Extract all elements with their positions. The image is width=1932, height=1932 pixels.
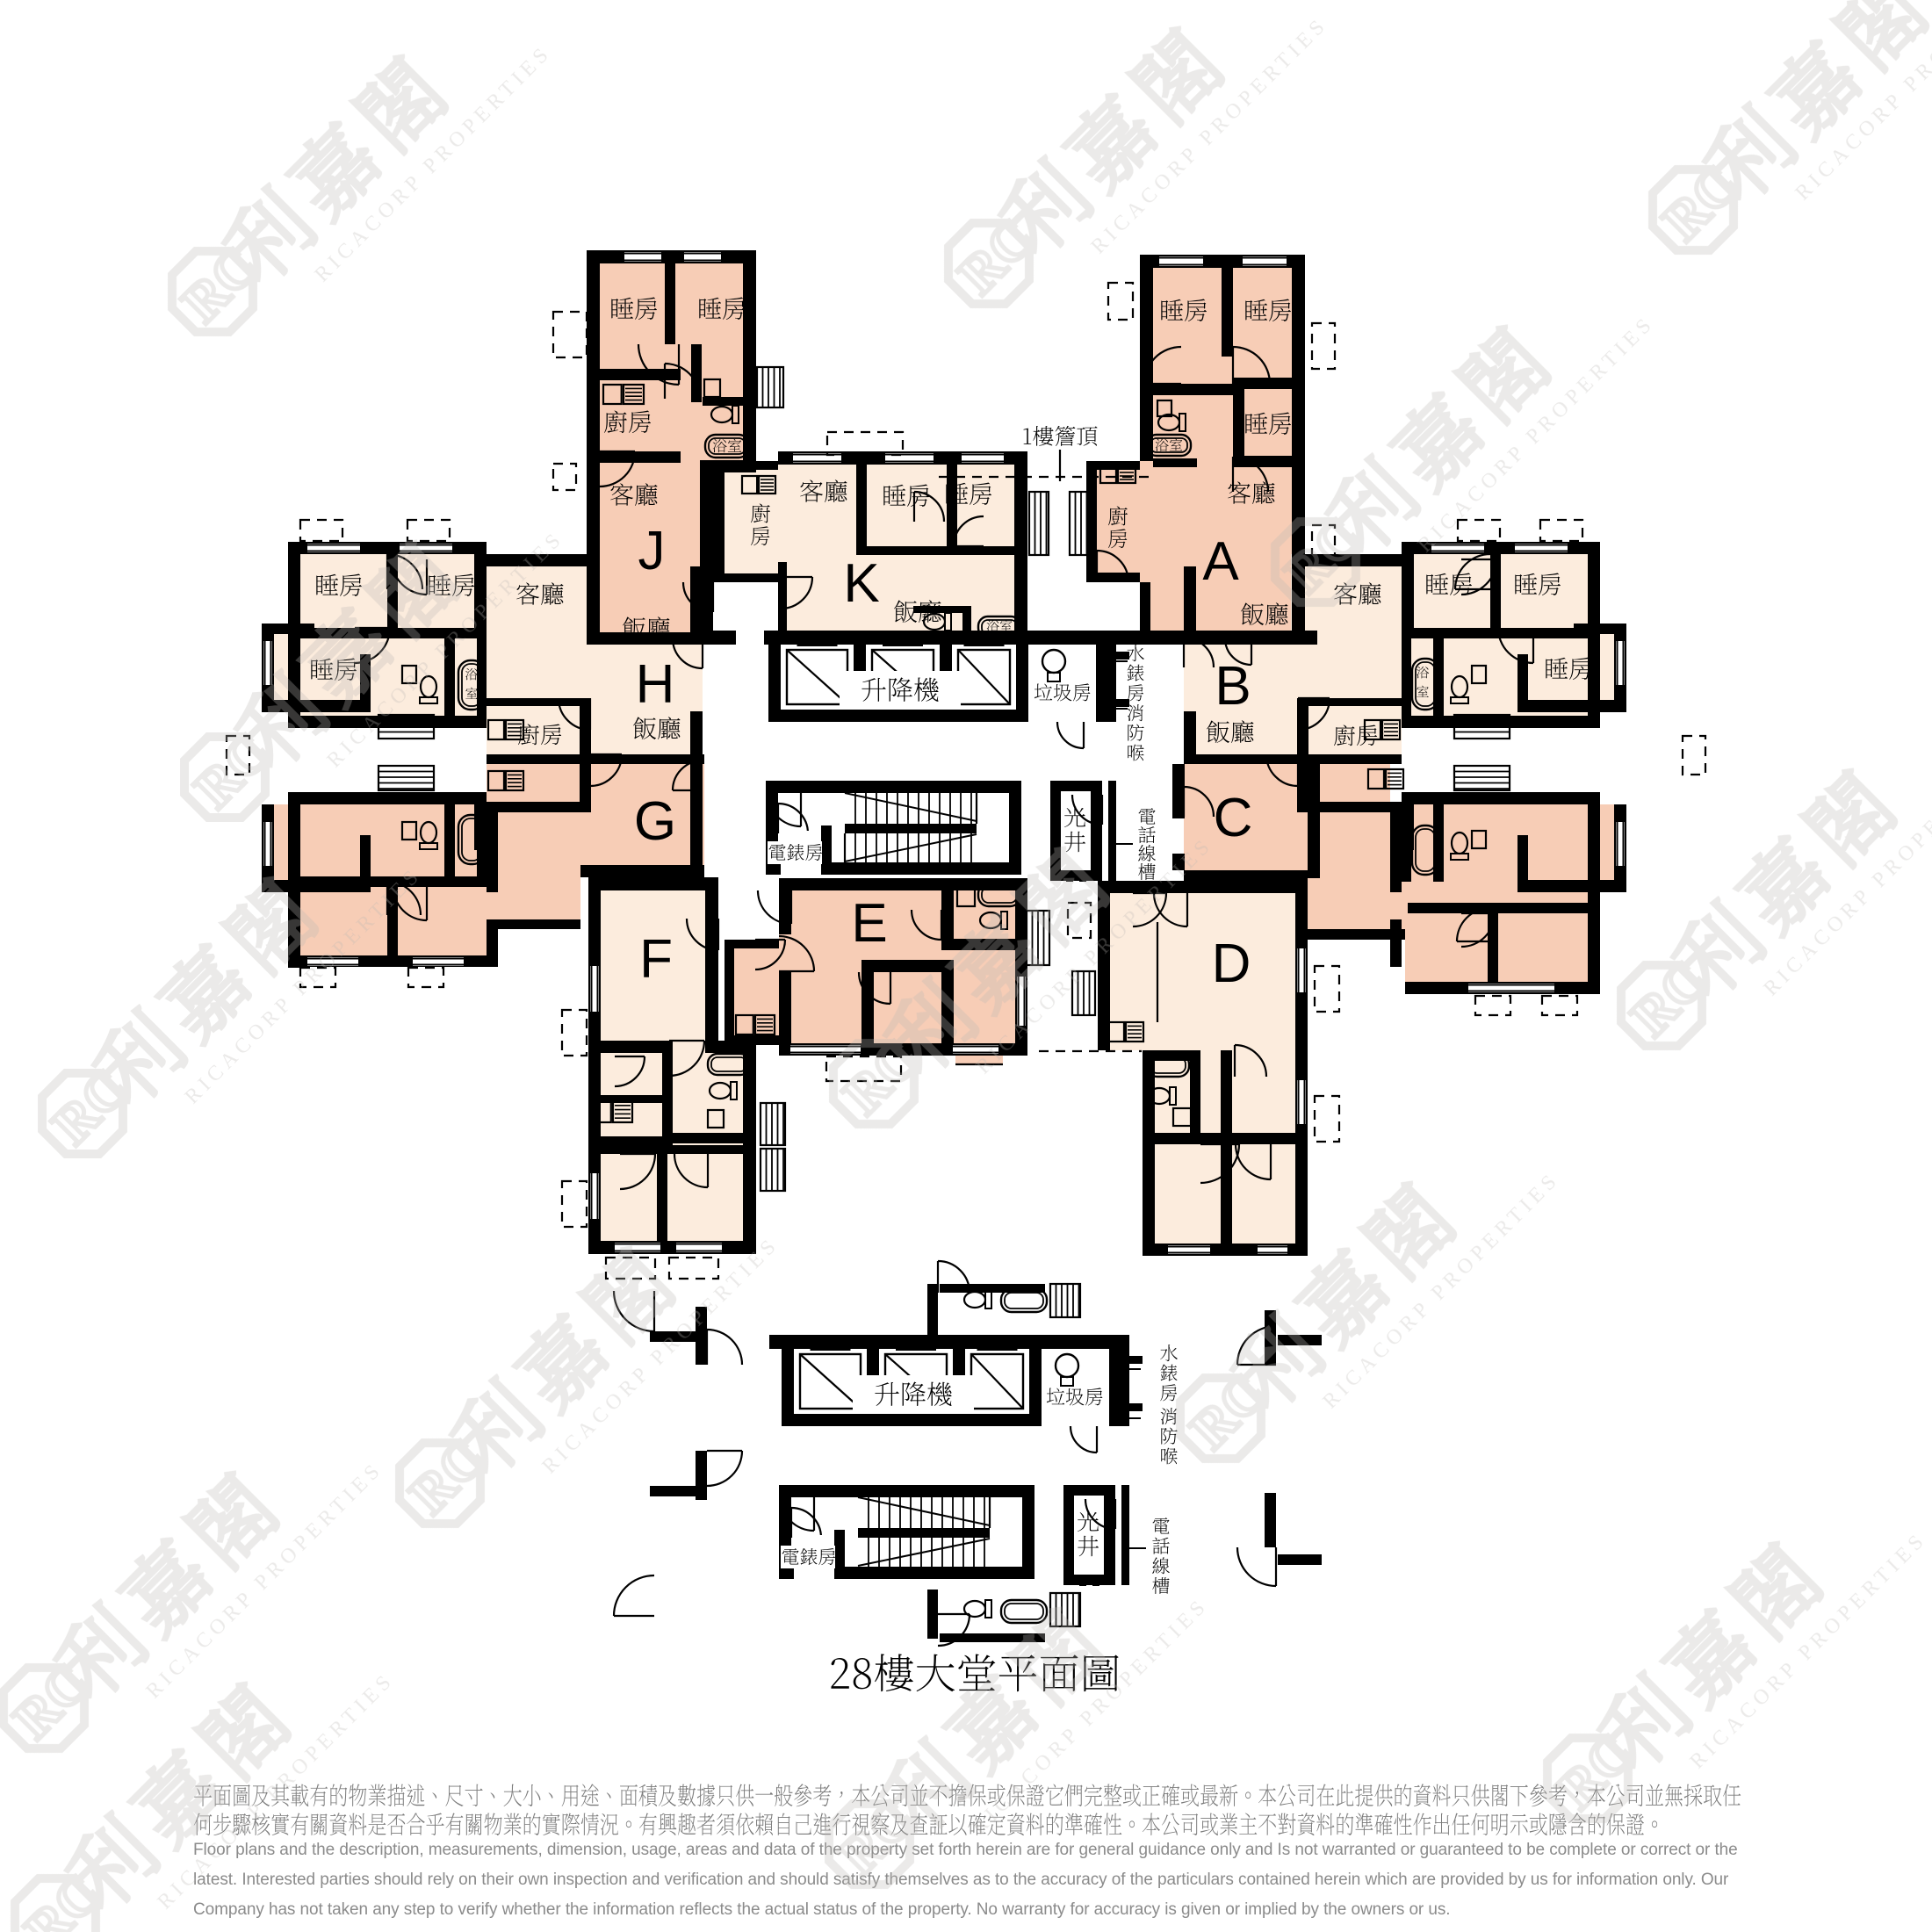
svg-text:F: F (639, 929, 673, 990)
svg-text:E: E (851, 893, 887, 954)
svg-text:Company has not taken any step: Company has not taken any step to verify… (193, 1900, 1450, 1919)
svg-text:A: A (1202, 531, 1239, 592)
svg-text:B: B (1215, 656, 1251, 717)
svg-text:D: D (1212, 934, 1251, 994)
svg-text:K: K (843, 553, 879, 614)
svg-text:J: J (638, 521, 666, 581)
svg-text:G: G (634, 791, 676, 852)
svg-text:Floor plans and the descriptio: Floor plans and the description, measure… (193, 1841, 1738, 1859)
svg-text:latest. Interested parties sho: latest. Interested parties should rely o… (193, 1871, 1729, 1889)
svg-text:H: H (636, 654, 675, 715)
svg-text:C: C (1214, 788, 1253, 848)
